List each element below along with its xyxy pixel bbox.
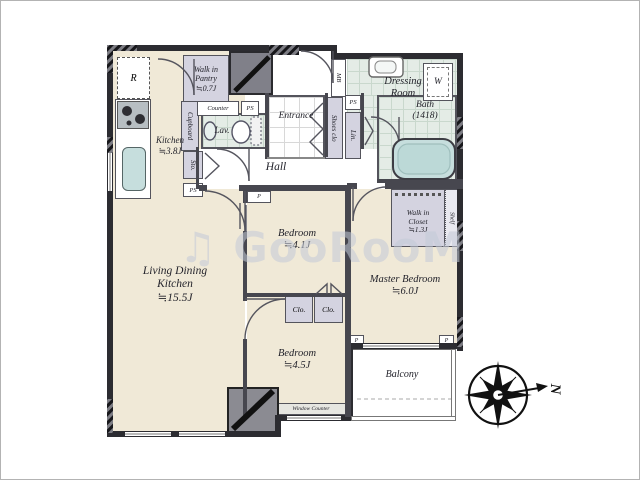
meter-box: MB [331, 59, 346, 97]
partition [196, 147, 199, 189]
linen-label: Lin. [349, 130, 357, 141]
shoes-closet-label: Shoes clo [330, 115, 338, 142]
p-label-1: P [257, 194, 261, 200]
window-counter-label: Window Counter [292, 406, 329, 412]
partition [377, 179, 463, 183]
washer-box: W [423, 63, 453, 101]
floorplan-canvas: Cupboard Sto. Shoes clo Lin. Shelf Clo. … [0, 0, 640, 480]
partition [199, 185, 207, 191]
wall-segment [457, 53, 463, 351]
closet2-box: Clo. [314, 295, 343, 323]
partition [245, 185, 349, 191]
wall-segment [331, 53, 463, 59]
shelf-label: Shelf [449, 212, 455, 224]
compass: N [464, 361, 563, 429]
linen-box: Lin. [345, 112, 361, 159]
partition [345, 185, 351, 417]
shaft-bottom [227, 387, 279, 435]
room-bedroom1-floor [247, 191, 345, 293]
partition [385, 183, 463, 189]
room-entrance-floor [267, 95, 325, 159]
ps-label-1: PS [246, 105, 253, 112]
counter-label: Counter [207, 105, 228, 112]
room-bath [377, 95, 457, 183]
kitchen-sink [122, 147, 146, 191]
entrance-step-line [267, 157, 325, 159]
ps-box-1: PS [241, 101, 259, 116]
fridge-label: R [130, 73, 136, 84]
partition [325, 93, 328, 157]
window [287, 416, 341, 420]
closet-hanger-pipe [395, 193, 441, 197]
partition [243, 189, 247, 203]
stove [117, 101, 149, 129]
partition [265, 93, 269, 159]
closet1-box: Clo. [285, 295, 313, 323]
wall-segment [107, 45, 337, 51]
wall-segment [107, 45, 113, 437]
window [108, 153, 112, 191]
ps-box-3: PS [345, 95, 361, 110]
room-lav [201, 113, 269, 149]
partition [243, 231, 247, 301]
window [125, 432, 171, 436]
closet1-label: Clo. [293, 305, 306, 314]
window-counter-strip: Window Counter [275, 403, 347, 415]
walkin-closet-box [391, 189, 445, 247]
closet2-label: Clo. [322, 305, 335, 314]
partition [243, 293, 349, 297]
partition [361, 93, 364, 149]
balcony-rail [451, 349, 456, 421]
storage-box: Sto. [183, 151, 203, 179]
pantry-box [183, 55, 229, 103]
shaft-top [229, 51, 273, 95]
cupboard-label: Cupboard [186, 112, 194, 140]
room-balcony-floor [351, 349, 455, 419]
window [363, 344, 439, 348]
compass-north-letter: N [547, 383, 563, 396]
window [179, 432, 225, 436]
partition [243, 339, 247, 417]
balcony-rail [351, 416, 456, 421]
north-arrow [498, 388, 539, 395]
counter-box: Counter [197, 101, 239, 116]
partition [347, 183, 357, 189]
fridge-space: R [117, 57, 150, 99]
p-box-1: P [247, 191, 271, 203]
ps-label-3: PS [349, 99, 356, 106]
meter-box-label: MB [335, 73, 342, 82]
